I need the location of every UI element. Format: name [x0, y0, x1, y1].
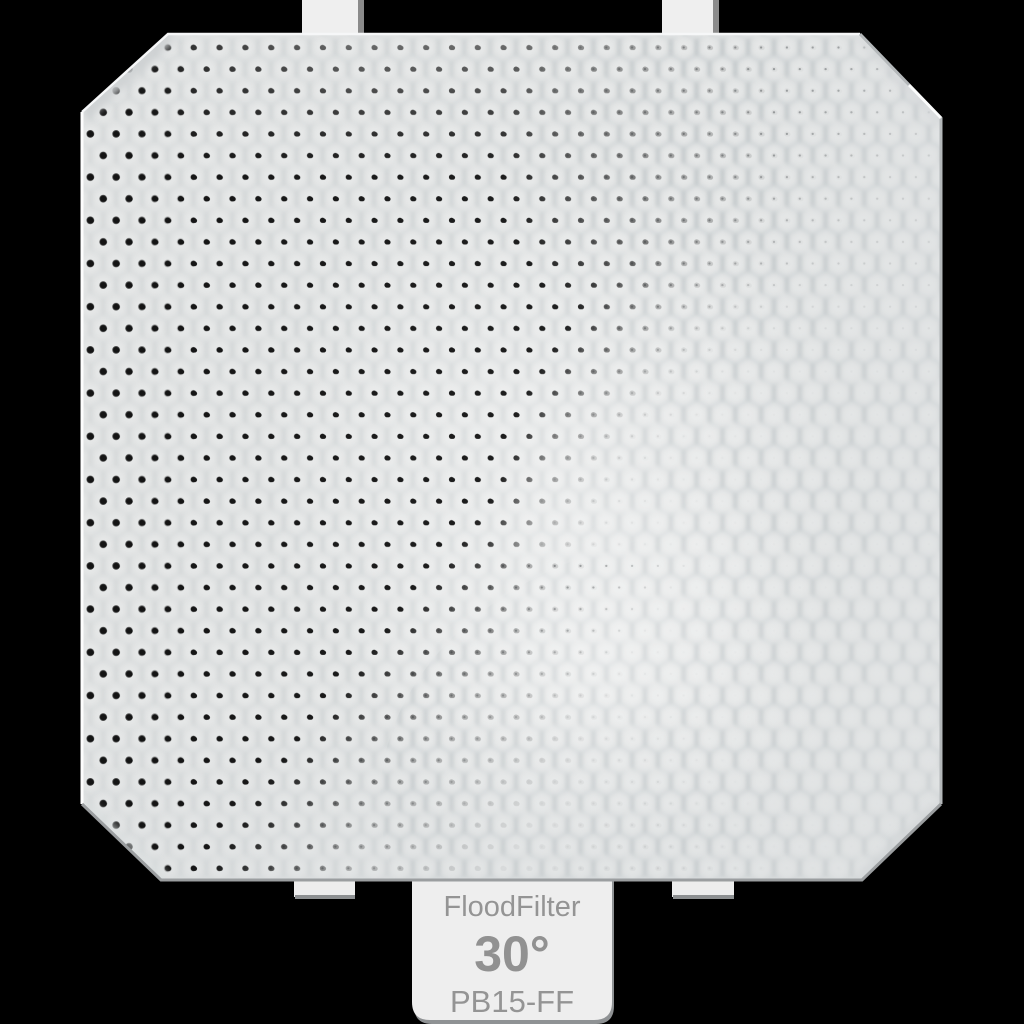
svg-text:PB15-FF: PB15-FF [450, 984, 574, 1019]
svg-text:30°: 30° [474, 926, 550, 982]
svg-text:FloodFilter: FloodFilter [444, 891, 581, 923]
